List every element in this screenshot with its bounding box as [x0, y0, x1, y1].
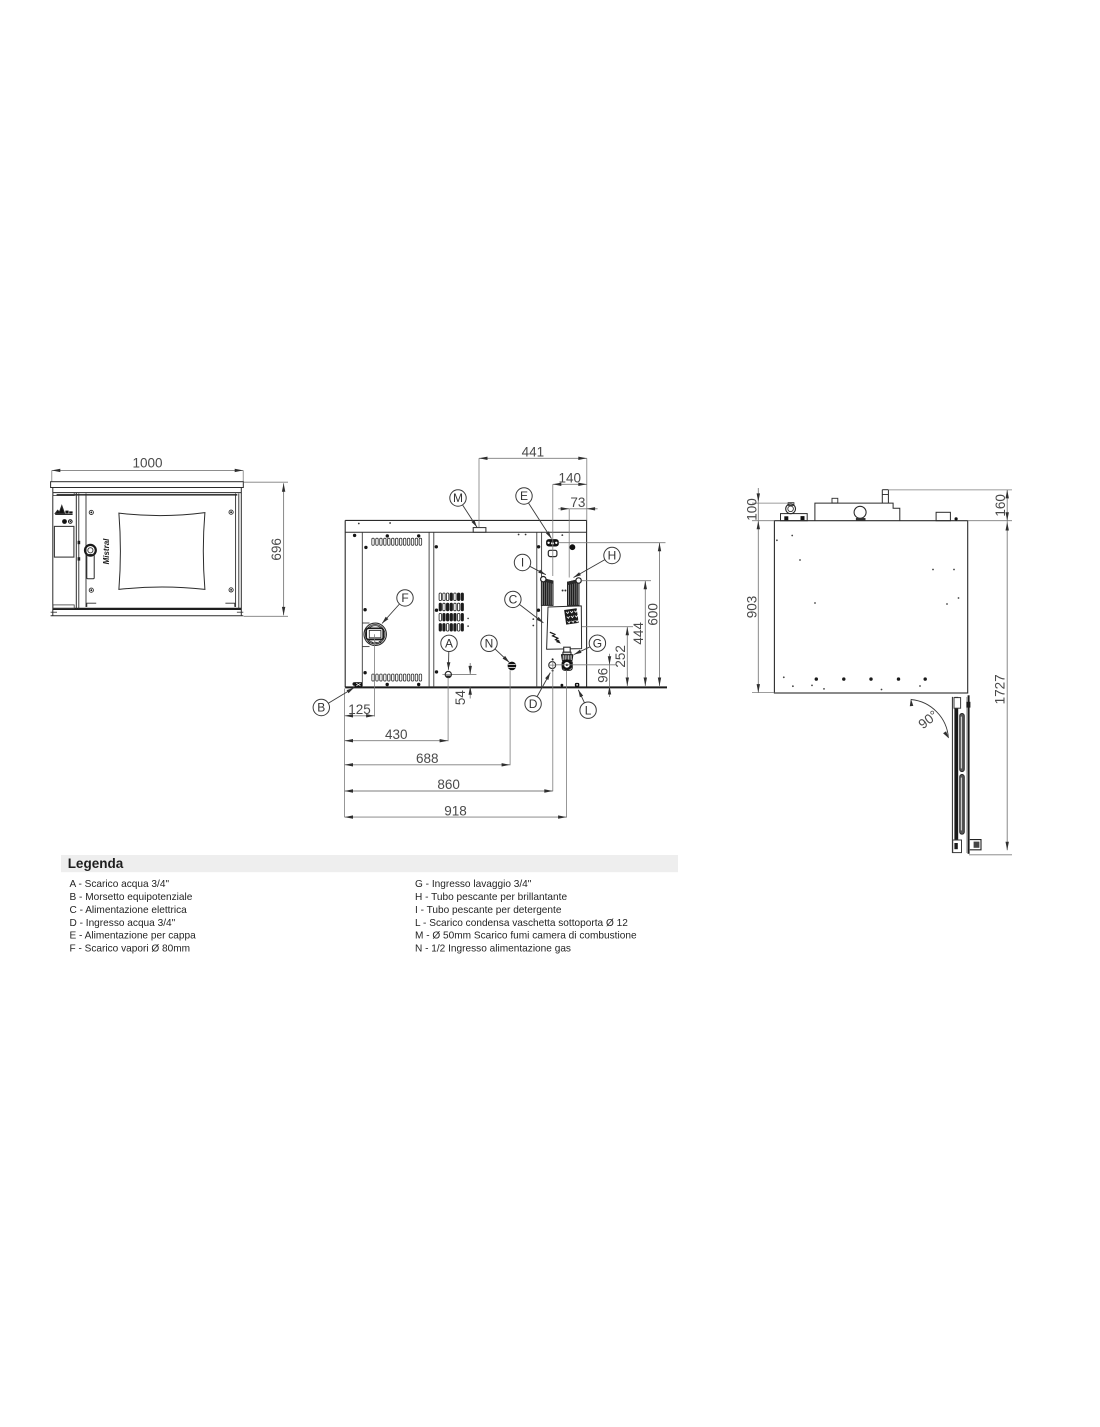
- svg-text:688: 688: [416, 751, 439, 766]
- svg-text:E - Alimentazione per cappa: E - Alimentazione per cappa: [70, 931, 197, 942]
- svg-text:73: 73: [570, 495, 585, 510]
- svg-text:I - Tubo pescante per detergen: I - Tubo pescante per detergente: [415, 905, 562, 916]
- svg-text:140: 140: [559, 471, 582, 486]
- svg-text:Mistral: Mistral: [102, 538, 111, 565]
- svg-text:L: L: [585, 703, 592, 717]
- svg-text:B - Morsetto equipotenziale: B - Morsetto equipotenziale: [70, 892, 193, 903]
- svg-text:441: 441: [522, 445, 545, 460]
- svg-text:A - Scarico acqua 3/4": A - Scarico acqua 3/4": [70, 879, 170, 890]
- svg-text:G - Ingresso lavaggio 3/4": G - Ingresso lavaggio 3/4": [415, 879, 532, 890]
- svg-text:N - 1/2 Ingresso alimentazione: N - 1/2 Ingresso alimentazione gas: [415, 943, 571, 954]
- svg-text:B: B: [317, 701, 325, 715]
- svg-text:160: 160: [993, 494, 1008, 517]
- svg-text:D: D: [529, 697, 538, 711]
- svg-text:E: E: [520, 489, 528, 503]
- svg-text:696: 696: [269, 538, 284, 561]
- svg-text:H: H: [608, 549, 617, 563]
- svg-text:M - Ø 50mm Scarico fumi camera: M - Ø 50mm Scarico fumi camera di combus…: [415, 931, 637, 942]
- svg-text:430: 430: [385, 727, 408, 742]
- svg-text:N: N: [485, 637, 494, 651]
- svg-text:903: 903: [744, 596, 759, 619]
- svg-text:Legenda: Legenda: [68, 856, 124, 871]
- svg-text:100: 100: [745, 498, 760, 521]
- svg-text:L - Scarico condensa vaschetta: L - Scarico condensa vaschetta sottoport…: [415, 918, 628, 929]
- svg-text:1727: 1727: [993, 674, 1008, 704]
- svg-text:96: 96: [595, 668, 610, 683]
- svg-text:444: 444: [631, 622, 646, 645]
- svg-text:918: 918: [444, 803, 467, 818]
- svg-text:H - Tubo pescante per brillant: H - Tubo pescante per brillantante: [415, 892, 567, 903]
- svg-text:860: 860: [437, 777, 460, 792]
- svg-text:A: A: [445, 637, 453, 651]
- svg-text:I: I: [521, 556, 524, 570]
- svg-text:D - Ingresso acqua 3/4": D - Ingresso acqua 3/4": [70, 918, 176, 929]
- svg-text:F: F: [401, 591, 408, 605]
- svg-text:G: G: [593, 636, 602, 650]
- svg-text:C - Alimentazione elettrica: C - Alimentazione elettrica: [70, 905, 188, 916]
- svg-text:54: 54: [453, 690, 468, 706]
- svg-text:252: 252: [613, 645, 628, 668]
- svg-text:600: 600: [645, 603, 660, 626]
- svg-text:125: 125: [348, 702, 371, 717]
- svg-text:F - Scarico vapori Ø 80mm: F - Scarico vapori Ø 80mm: [70, 943, 191, 954]
- svg-text:M: M: [453, 491, 463, 505]
- svg-text:C: C: [509, 593, 518, 607]
- svg-text:1000: 1000: [132, 456, 162, 471]
